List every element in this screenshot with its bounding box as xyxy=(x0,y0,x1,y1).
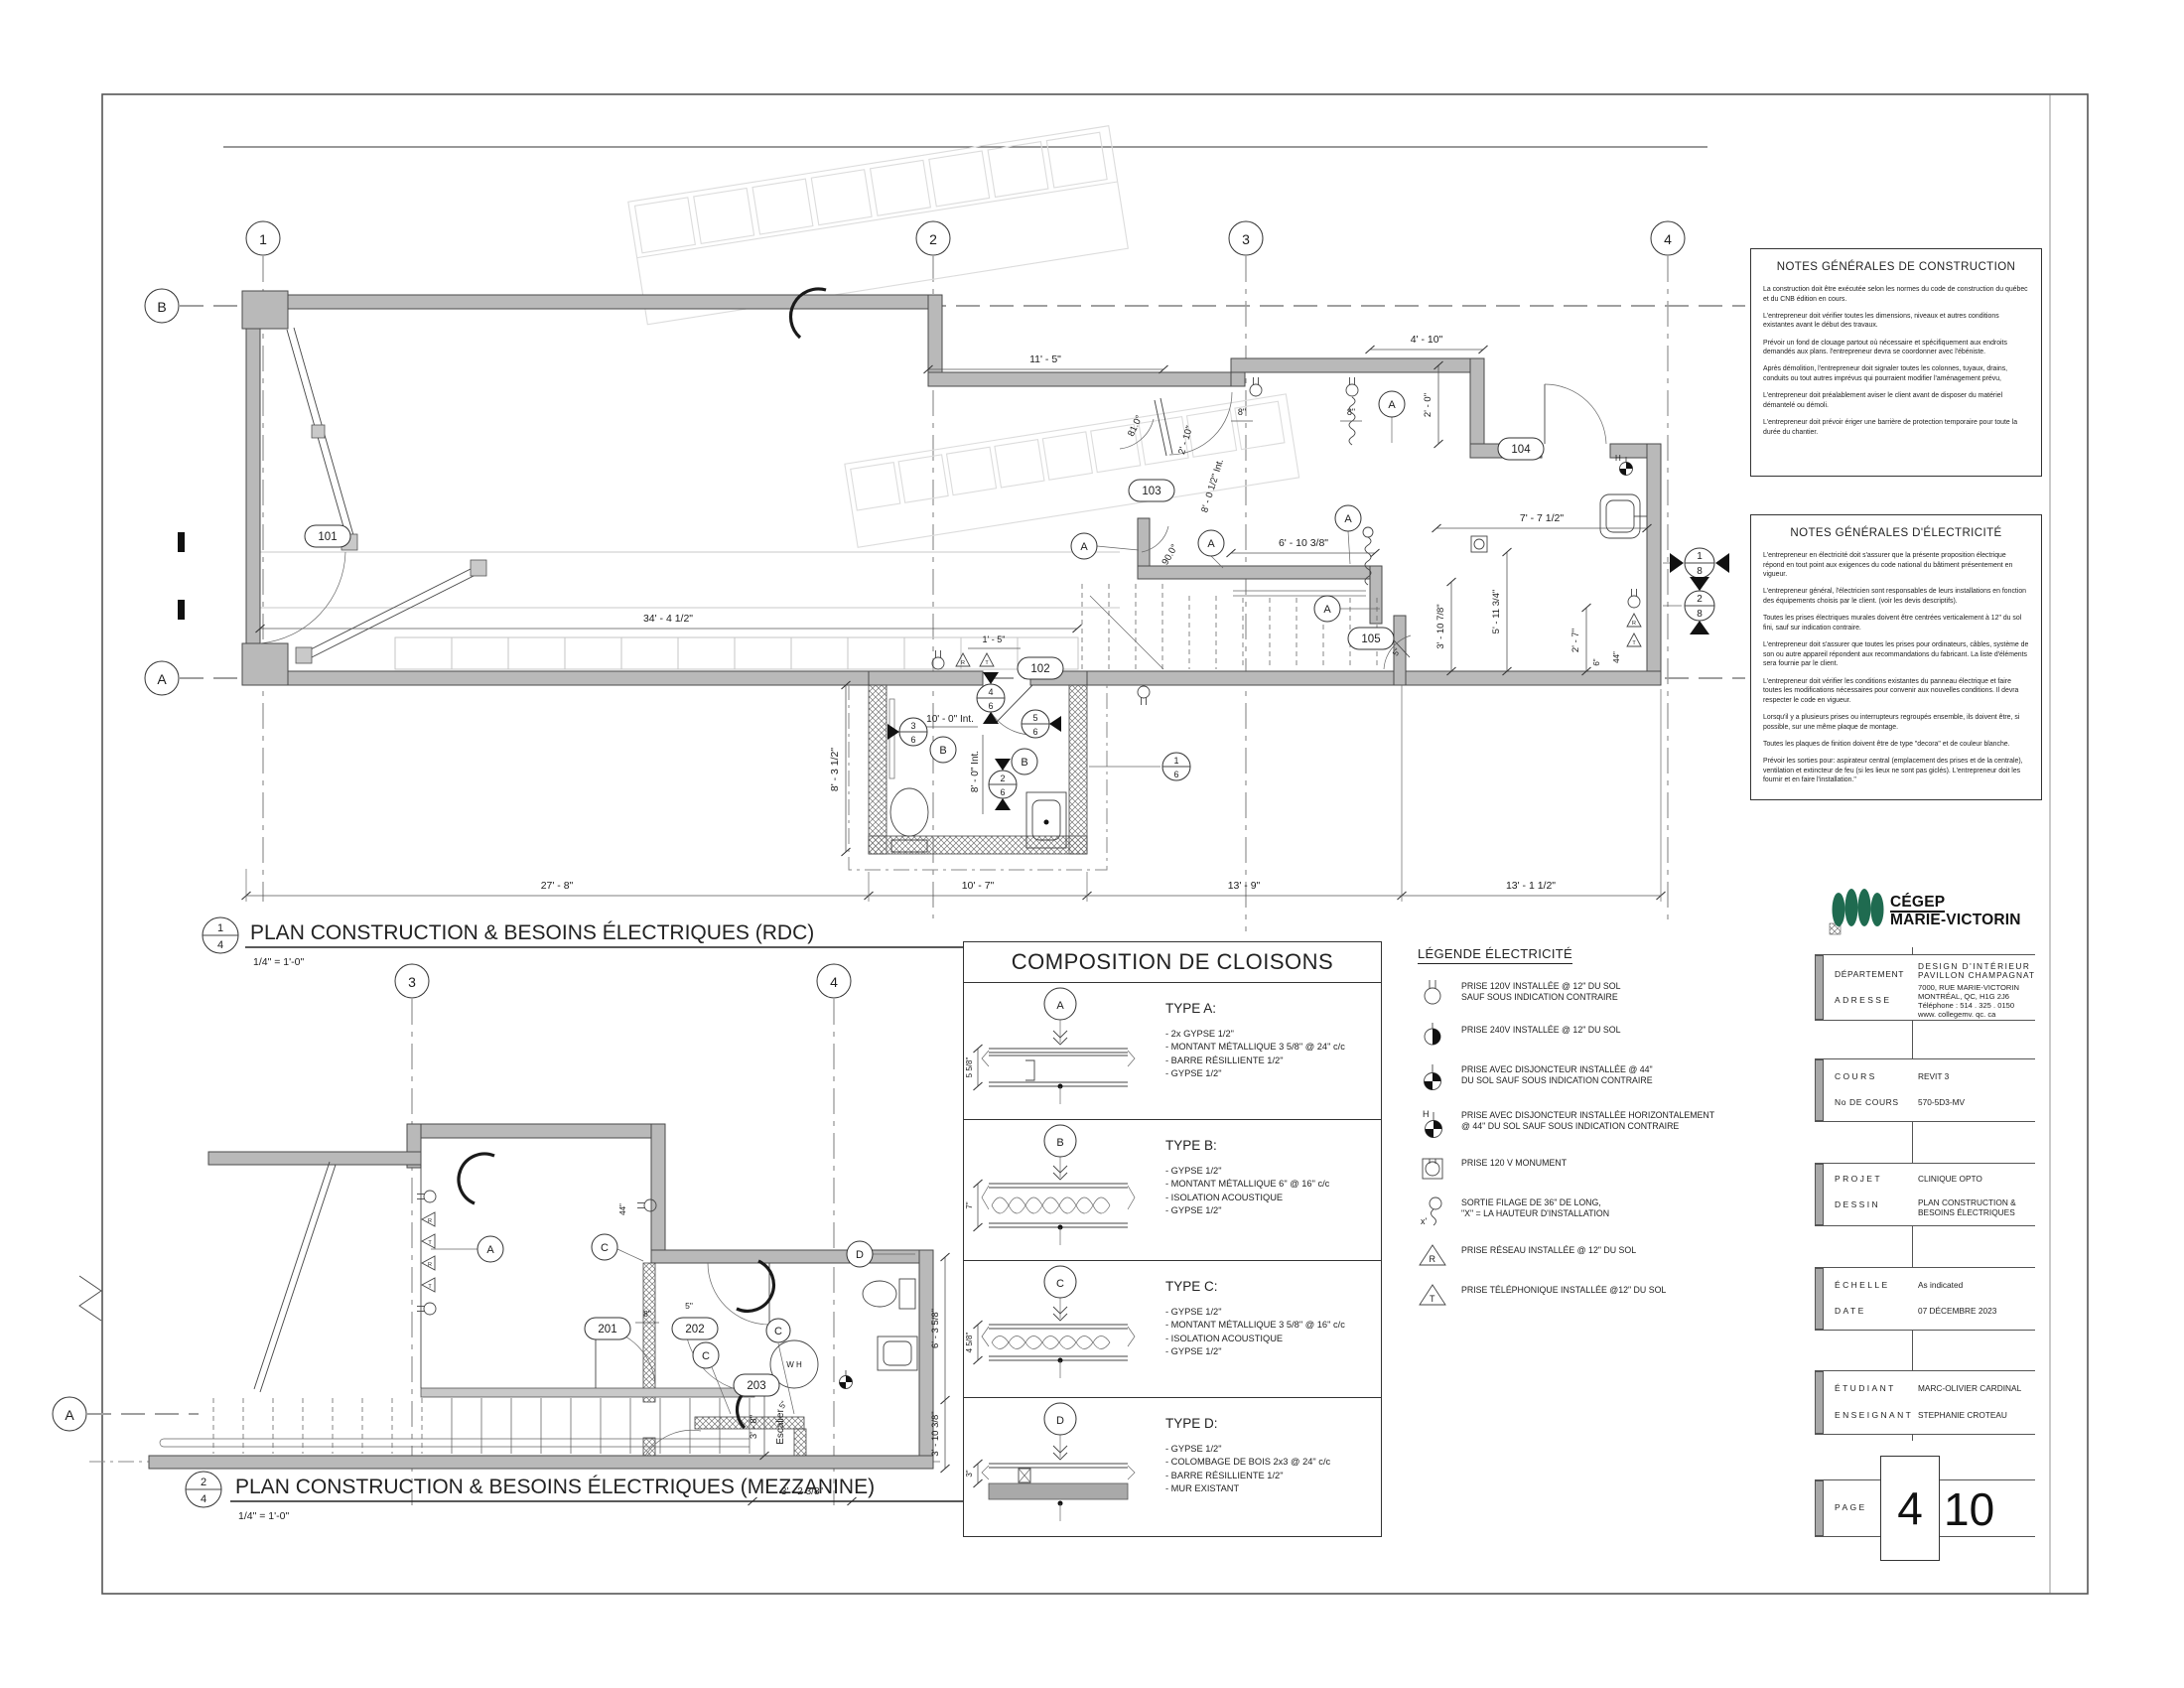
svg-text:3: 3 xyxy=(408,974,416,990)
svg-text:6: 6 xyxy=(910,735,915,745)
cloison-sketch-A: A 5 5/8" xyxy=(964,983,1158,1119)
svg-text:6: 6 xyxy=(988,701,993,711)
svg-text:8": 8" xyxy=(643,1309,651,1319)
mezz-title-text: PLAN CONSTRUCTION & BESOINS ÉLECTRIQUES … xyxy=(235,1476,875,1498)
svg-text:3: 3 xyxy=(910,721,915,731)
svg-text:44": 44" xyxy=(618,1203,627,1215)
prise-telephone-icon: T xyxy=(1418,1282,1451,1308)
svg-text:D: D xyxy=(1056,1415,1064,1427)
svg-text:A: A xyxy=(1388,399,1396,411)
telephone-icon: T xyxy=(422,1234,435,1248)
svg-text:105: 105 xyxy=(1361,633,1380,645)
titleblock-row-etudiant: ÉTUDIANT ENSEIGNANT MARC-OLIVIER CARDINA… xyxy=(1815,1370,2035,1435)
svg-text:A: A xyxy=(1323,604,1331,616)
svg-text:201: 201 xyxy=(598,1324,616,1336)
svg-text:8' - 0" Int.: 8' - 0" Int. xyxy=(970,751,981,792)
type-c-heading: TYPE C: xyxy=(1165,1279,1345,1294)
svg-text:C: C xyxy=(1056,1278,1064,1290)
cegep-logo-icon xyxy=(1829,884,1884,939)
cloisons-panel: COMPOSITION DE CLOISONS A 5 5/8" TYPE A:… xyxy=(963,941,1382,1537)
svg-text:3": 3" xyxy=(965,1470,974,1477)
svg-text:8": 8" xyxy=(1238,407,1246,417)
grid-bubble-A: A xyxy=(157,671,167,687)
svg-text:5": 5" xyxy=(685,1301,693,1311)
svg-text:1/4" = 1'-0": 1/4" = 1'-0" xyxy=(253,956,304,968)
cloison-sketch-B: B 7" xyxy=(964,1120,1158,1260)
svg-text:2' - 0": 2' - 0" xyxy=(1423,393,1433,417)
notes-construction-title: NOTES GÉNÉRALES DE CONSTRUCTION xyxy=(1763,261,2029,273)
prise-240v-icon xyxy=(1418,1022,1451,1048)
svg-text:T: T xyxy=(1430,1294,1435,1304)
svg-text:27' - 8": 27' - 8" xyxy=(541,880,574,892)
legend-panel: LÉGENDE ÉLECTRICITÉ PRISE 120V INSTALLÉE… xyxy=(1418,945,1745,1322)
telephone-icon: T xyxy=(1627,633,1641,646)
svg-text:R: R xyxy=(1632,621,1636,627)
svg-text:R: R xyxy=(428,1218,432,1224)
svg-text:104: 104 xyxy=(1511,444,1531,456)
svg-text:1/4" = 1'-0": 1/4" = 1'-0" xyxy=(238,1510,289,1522)
svg-text:13' - 9": 13' - 9" xyxy=(1228,880,1261,892)
cloison-sketch-C: C 4 5/8" xyxy=(964,1261,1158,1397)
svg-text:T: T xyxy=(985,660,989,666)
svg-text:C: C xyxy=(702,1350,710,1362)
svg-text:T: T xyxy=(428,1240,432,1246)
svg-text:8: 8 xyxy=(1697,566,1703,577)
svg-text:6' - 10 3/8": 6' - 10 3/8" xyxy=(1279,537,1328,549)
svg-text:4' - 10": 4' - 10" xyxy=(1411,334,1443,346)
svg-text:5' - 11 3/4": 5' - 11 3/4" xyxy=(1491,590,1502,634)
svg-text:81.0°: 81.0° xyxy=(1126,413,1145,438)
svg-text:x': x' xyxy=(1421,1216,1428,1226)
type-a-heading: TYPE A: xyxy=(1165,1001,1345,1016)
svg-text:102: 102 xyxy=(1030,663,1049,675)
grid-bubble-B: B xyxy=(157,299,166,315)
logo-line2: MARIE-VICTORIN xyxy=(1890,913,2021,928)
svg-text:4: 4 xyxy=(217,939,223,951)
svg-text:4: 4 xyxy=(830,974,838,990)
reseau-icon: R xyxy=(1627,614,1641,627)
svg-text:103: 103 xyxy=(1142,486,1160,497)
svg-text:90.0°: 90.0° xyxy=(1160,542,1180,567)
page-number: 4 xyxy=(1881,1457,1939,1560)
svg-text:2: 2 xyxy=(1000,774,1005,783)
grid-bubble-3: 3 xyxy=(1242,231,1250,247)
svg-text:4 5/8": 4 5/8" xyxy=(965,1333,974,1353)
svg-text:5: 5 xyxy=(1032,713,1037,723)
titleblock-row-projet: PROJET DESSIN CLINIQUE OPTO PLAN CONSTRU… xyxy=(1815,1163,2035,1226)
svg-text:202: 202 xyxy=(685,1324,704,1336)
grid-bubble-2: 2 xyxy=(929,231,937,247)
svg-text:C: C xyxy=(601,1242,609,1254)
prise-disjoncteur-icon xyxy=(1418,1061,1451,1093)
svg-text:3' - 10 3/8": 3' - 10 3/8" xyxy=(930,1411,941,1456)
svg-text:A: A xyxy=(1344,513,1352,525)
sortie-filage-icon: x' xyxy=(1418,1195,1451,1228)
svg-text:101: 101 xyxy=(318,531,337,543)
svg-text:6: 6 xyxy=(1173,770,1178,779)
svg-text:6' - 3 5/8": 6' - 3 5/8" xyxy=(930,1309,941,1348)
svg-text:6: 6 xyxy=(1000,787,1005,797)
prise-120v-icon xyxy=(1418,978,1451,1008)
legend-title: LÉGENDE ÉLECTRICITÉ xyxy=(1418,946,1572,964)
titleblock-row-departement: DÉPARTEMENT ADRESSE DESIGN D'INTÉRIEUR P… xyxy=(1815,954,2035,1021)
svg-text:10' - 0" Int.: 10' - 0" Int. xyxy=(926,714,974,725)
svg-text:2: 2 xyxy=(201,1477,206,1488)
svg-text:1: 1 xyxy=(1697,551,1703,562)
logo-line1: CÉGEP xyxy=(1890,895,1945,913)
mezz-stairs xyxy=(160,1398,750,1454)
svg-text:A: A xyxy=(65,1407,74,1423)
svg-text:203: 203 xyxy=(747,1380,765,1392)
page-total: 10 xyxy=(1944,1482,1994,1536)
water-heater-label: W H xyxy=(786,1360,802,1369)
svg-text:B: B xyxy=(939,745,946,757)
svg-text:1: 1 xyxy=(1173,756,1178,766)
svg-text:R: R xyxy=(1430,1254,1436,1264)
mezz-fixtures: W H R T R T xyxy=(417,1191,917,1389)
grid-bubble-1: 1 xyxy=(259,231,267,247)
svg-text:7": 7" xyxy=(965,1201,974,1208)
cloison-sketch-D: D 3" xyxy=(964,1398,1158,1538)
reseau-icon: R xyxy=(956,653,970,666)
rdc-title-text: PLAN CONSTRUCTION & BESOINS ÉLECTRIQUES … xyxy=(250,921,814,944)
page-number-box: 4 xyxy=(1880,1456,1940,1561)
svg-text:6": 6" xyxy=(1592,658,1601,665)
svg-text:11' - 5": 11' - 5" xyxy=(1029,353,1061,365)
title-block: CÉGEPMARIE-VICTORIN DÉPARTEMENT ADRESSE … xyxy=(1815,882,2039,1569)
telephone-icon: T xyxy=(980,653,994,666)
type-b-heading: TYPE B: xyxy=(1165,1138,1329,1153)
svg-text:4: 4 xyxy=(201,1493,206,1505)
notes-electricite-box: NOTES GÉNÉRALES D'ÉLECTRICITÉ L'entrepre… xyxy=(1750,514,2042,800)
mezz-grid: 3 4 A xyxy=(53,964,943,1505)
svg-text:4: 4 xyxy=(988,687,993,697)
svg-text:34' - 4 1/2": 34' - 4 1/2" xyxy=(643,613,693,625)
svg-text:2' - 7": 2' - 7" xyxy=(1570,629,1581,652)
svg-text:8' - 3 1/2": 8' - 3 1/2" xyxy=(829,748,841,792)
mezz-walls xyxy=(79,1124,933,1469)
svg-text:7' - 7 1/2": 7' - 7 1/2" xyxy=(1520,512,1565,524)
reseau-icon: R xyxy=(422,1212,435,1226)
svg-text:R: R xyxy=(961,660,965,666)
svg-text:8: 8 xyxy=(1697,609,1703,620)
prise-monument-icon xyxy=(1418,1155,1451,1181)
svg-text:13' - 1 1/2": 13' - 1 1/2" xyxy=(1506,880,1556,892)
svg-text:A: A xyxy=(486,1244,494,1256)
svg-text:8": 8" xyxy=(1347,407,1355,417)
svg-text:H: H xyxy=(1423,1109,1430,1119)
svg-text:A: A xyxy=(1080,541,1088,553)
svg-text:10' - 7": 10' - 7" xyxy=(962,880,995,892)
cegep-logo: CÉGEPMARIE-VICTORIN xyxy=(1829,884,2021,939)
svg-text:B: B xyxy=(1056,1137,1063,1149)
grid-bubble-4: 4 xyxy=(1664,231,1672,247)
svg-text:T: T xyxy=(428,1284,432,1290)
svg-text:R: R xyxy=(428,1262,432,1268)
svg-text:2: 2 xyxy=(1697,594,1703,605)
svg-text:1: 1 xyxy=(217,922,223,934)
prise-reseau-icon: R xyxy=(1418,1242,1451,1268)
escalier-label: Escalier xyxy=(775,1409,786,1445)
titleblock-row-cours: COURS No DE COURS REVIT 3 570-5D3-MV xyxy=(1815,1058,2035,1122)
rdc-dimensions: 11' - 5" 4' - 10" 2' - 0" 8" 8" 81.0° 2'… xyxy=(242,334,1666,902)
cloisons-title: COMPOSITION DE CLOISONS xyxy=(964,942,1381,983)
svg-text:A: A xyxy=(1056,1000,1064,1012)
svg-text:5 5/8": 5 5/8" xyxy=(965,1057,974,1078)
notes-electricite-title: NOTES GÉNÉRALES D'ÉLECTRICITÉ xyxy=(1763,527,2029,539)
rdc-room-tags: 101 102 103 104 105 xyxy=(305,438,1544,679)
svg-text:6: 6 xyxy=(1032,727,1037,737)
reseau-icon: R xyxy=(422,1256,435,1270)
svg-text:B: B xyxy=(1021,757,1027,769)
svg-text:44": 44" xyxy=(1612,651,1621,663)
type-d-heading: TYPE D: xyxy=(1165,1416,1330,1431)
svg-text:D: D xyxy=(856,1249,864,1261)
svg-text:H: H xyxy=(1615,454,1621,463)
notes-construction-box: NOTES GÉNÉRALES DE CONSTRUCTION La const… xyxy=(1750,248,2042,477)
telephone-icon: T xyxy=(422,1278,435,1292)
prise-disjoncteur-h-icon: H xyxy=(1418,1107,1451,1141)
rdc-ghost-furniture xyxy=(260,126,1299,669)
svg-text:3' - 10 7/8": 3' - 10 7/8" xyxy=(1435,604,1446,648)
svg-text:8' - 0 1/2" Int.: 8' - 0 1/2" Int. xyxy=(1199,458,1226,514)
titleblock-row-echelle: ÉCHELLE DATE As indicated 07 DÉCEMBRE 20… xyxy=(1815,1267,2035,1331)
svg-text:5": 5" xyxy=(777,1399,789,1410)
svg-text:C: C xyxy=(774,1326,782,1337)
svg-text:A: A xyxy=(1207,538,1215,550)
rdc-grid: 1 2 3 4 B A xyxy=(145,221,1745,931)
svg-text:1' - 5": 1' - 5" xyxy=(983,634,1006,644)
drawing-sheet: 1 2 3 4 B A xyxy=(0,0,2184,1688)
svg-text:3' - 8": 3' - 8" xyxy=(749,1415,759,1439)
svg-text:T: T xyxy=(1632,640,1636,646)
